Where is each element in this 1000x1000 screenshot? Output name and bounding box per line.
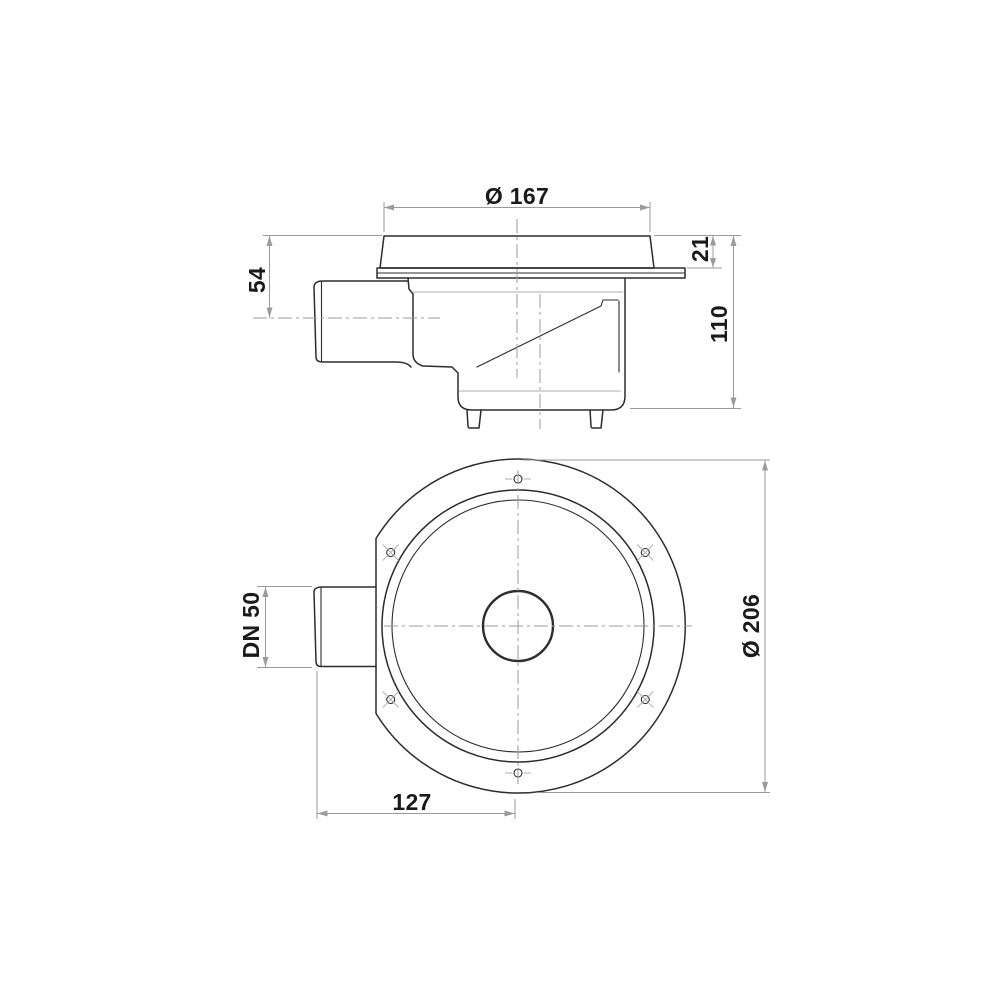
trap-slope	[477, 300, 618, 367]
dim-label-total-height: 110	[706, 305, 732, 343]
dim-label-flange-height: 21	[687, 236, 713, 262]
dim-label-grate-diameter: Ø 167	[485, 183, 549, 209]
dim-label-flange-diameter: Ø 206	[738, 594, 764, 658]
dim-inlet-to-center: 127	[317, 671, 515, 819]
dim-flange-height: 21	[654, 236, 741, 269]
dim-total-height: 110	[630, 236, 741, 409]
technical-drawing: Ø 167 54 21 110	[0, 0, 1000, 1000]
dim-label-inlet-to-center: 127	[392, 789, 431, 815]
dim-label-inlet-center-depth: 54	[244, 267, 270, 293]
foot-right	[590, 410, 603, 428]
dim-inlet-center-depth: 54	[244, 236, 382, 319]
foot-left	[467, 410, 481, 428]
drawing-canvas: Ø 167 54 21 110	[0, 0, 1000, 1000]
side-inlet-pipe	[314, 281, 411, 367]
top-view: DN 50 Ø 206 127	[238, 459, 770, 819]
dim-label-inlet-nominal: DN 50	[238, 592, 264, 659]
side-view: Ø 167 54 21 110	[244, 183, 741, 429]
inlet-pipe-plan	[314, 587, 376, 667]
dim-inlet-nominal: DN 50	[238, 587, 312, 668]
